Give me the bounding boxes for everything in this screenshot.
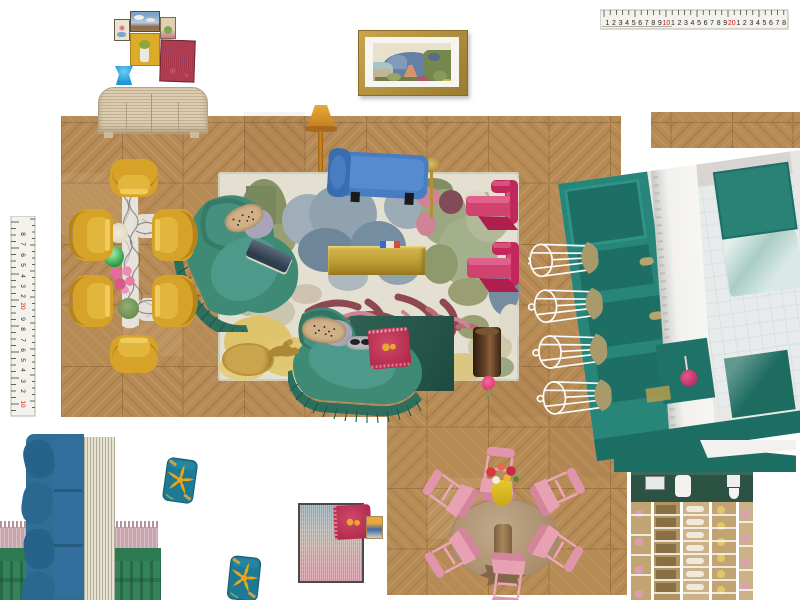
svg-text:3: 3 bbox=[749, 20, 753, 27]
svg-text:5: 5 bbox=[763, 20, 767, 27]
svg-text:7: 7 bbox=[19, 338, 26, 342]
svg-text:7: 7 bbox=[645, 20, 649, 27]
svg-text:6: 6 bbox=[19, 348, 26, 352]
svg-text:10: 10 bbox=[19, 400, 26, 408]
svg-text:8: 8 bbox=[651, 20, 655, 27]
svg-text:2: 2 bbox=[19, 294, 26, 298]
svg-text:8: 8 bbox=[717, 20, 721, 27]
svg-text:6: 6 bbox=[19, 253, 26, 257]
svg-text:5: 5 bbox=[19, 358, 26, 362]
svg-text:7: 7 bbox=[776, 20, 780, 27]
svg-text:20: 20 bbox=[728, 20, 736, 27]
svg-text:4: 4 bbox=[691, 20, 695, 27]
svg-text:3: 3 bbox=[19, 379, 26, 383]
svg-text:8: 8 bbox=[19, 232, 26, 236]
svg-text:8: 8 bbox=[19, 327, 26, 331]
svg-text:2: 2 bbox=[612, 20, 616, 27]
svg-text:6: 6 bbox=[769, 20, 773, 27]
svg-text:5: 5 bbox=[19, 263, 26, 267]
svg-text:2: 2 bbox=[743, 20, 747, 27]
svg-text:3: 3 bbox=[19, 284, 26, 288]
svg-text:2: 2 bbox=[19, 389, 26, 393]
svg-text:10: 10 bbox=[663, 20, 671, 27]
svg-text:3: 3 bbox=[619, 20, 623, 27]
svg-text:20: 20 bbox=[19, 302, 26, 310]
svg-text:4: 4 bbox=[19, 368, 26, 372]
svg-text:1: 1 bbox=[736, 20, 740, 27]
svg-text:8: 8 bbox=[782, 20, 786, 27]
svg-text:3: 3 bbox=[684, 20, 688, 27]
svg-text:4: 4 bbox=[756, 20, 760, 27]
svg-text:1: 1 bbox=[671, 20, 675, 27]
svg-text:7: 7 bbox=[710, 20, 714, 27]
svg-text:4: 4 bbox=[19, 274, 26, 278]
svg-text:7: 7 bbox=[19, 242, 26, 246]
svg-text:5: 5 bbox=[697, 20, 701, 27]
svg-text:9: 9 bbox=[723, 20, 727, 27]
svg-text:2: 2 bbox=[677, 20, 681, 27]
svg-text:4: 4 bbox=[625, 20, 629, 27]
svg-text:1: 1 bbox=[606, 20, 610, 27]
svg-text:9: 9 bbox=[658, 20, 662, 27]
svg-text:6: 6 bbox=[704, 20, 708, 27]
svg-text:6: 6 bbox=[638, 20, 642, 27]
svg-text:5: 5 bbox=[632, 20, 636, 27]
svg-text:9: 9 bbox=[19, 317, 26, 321]
